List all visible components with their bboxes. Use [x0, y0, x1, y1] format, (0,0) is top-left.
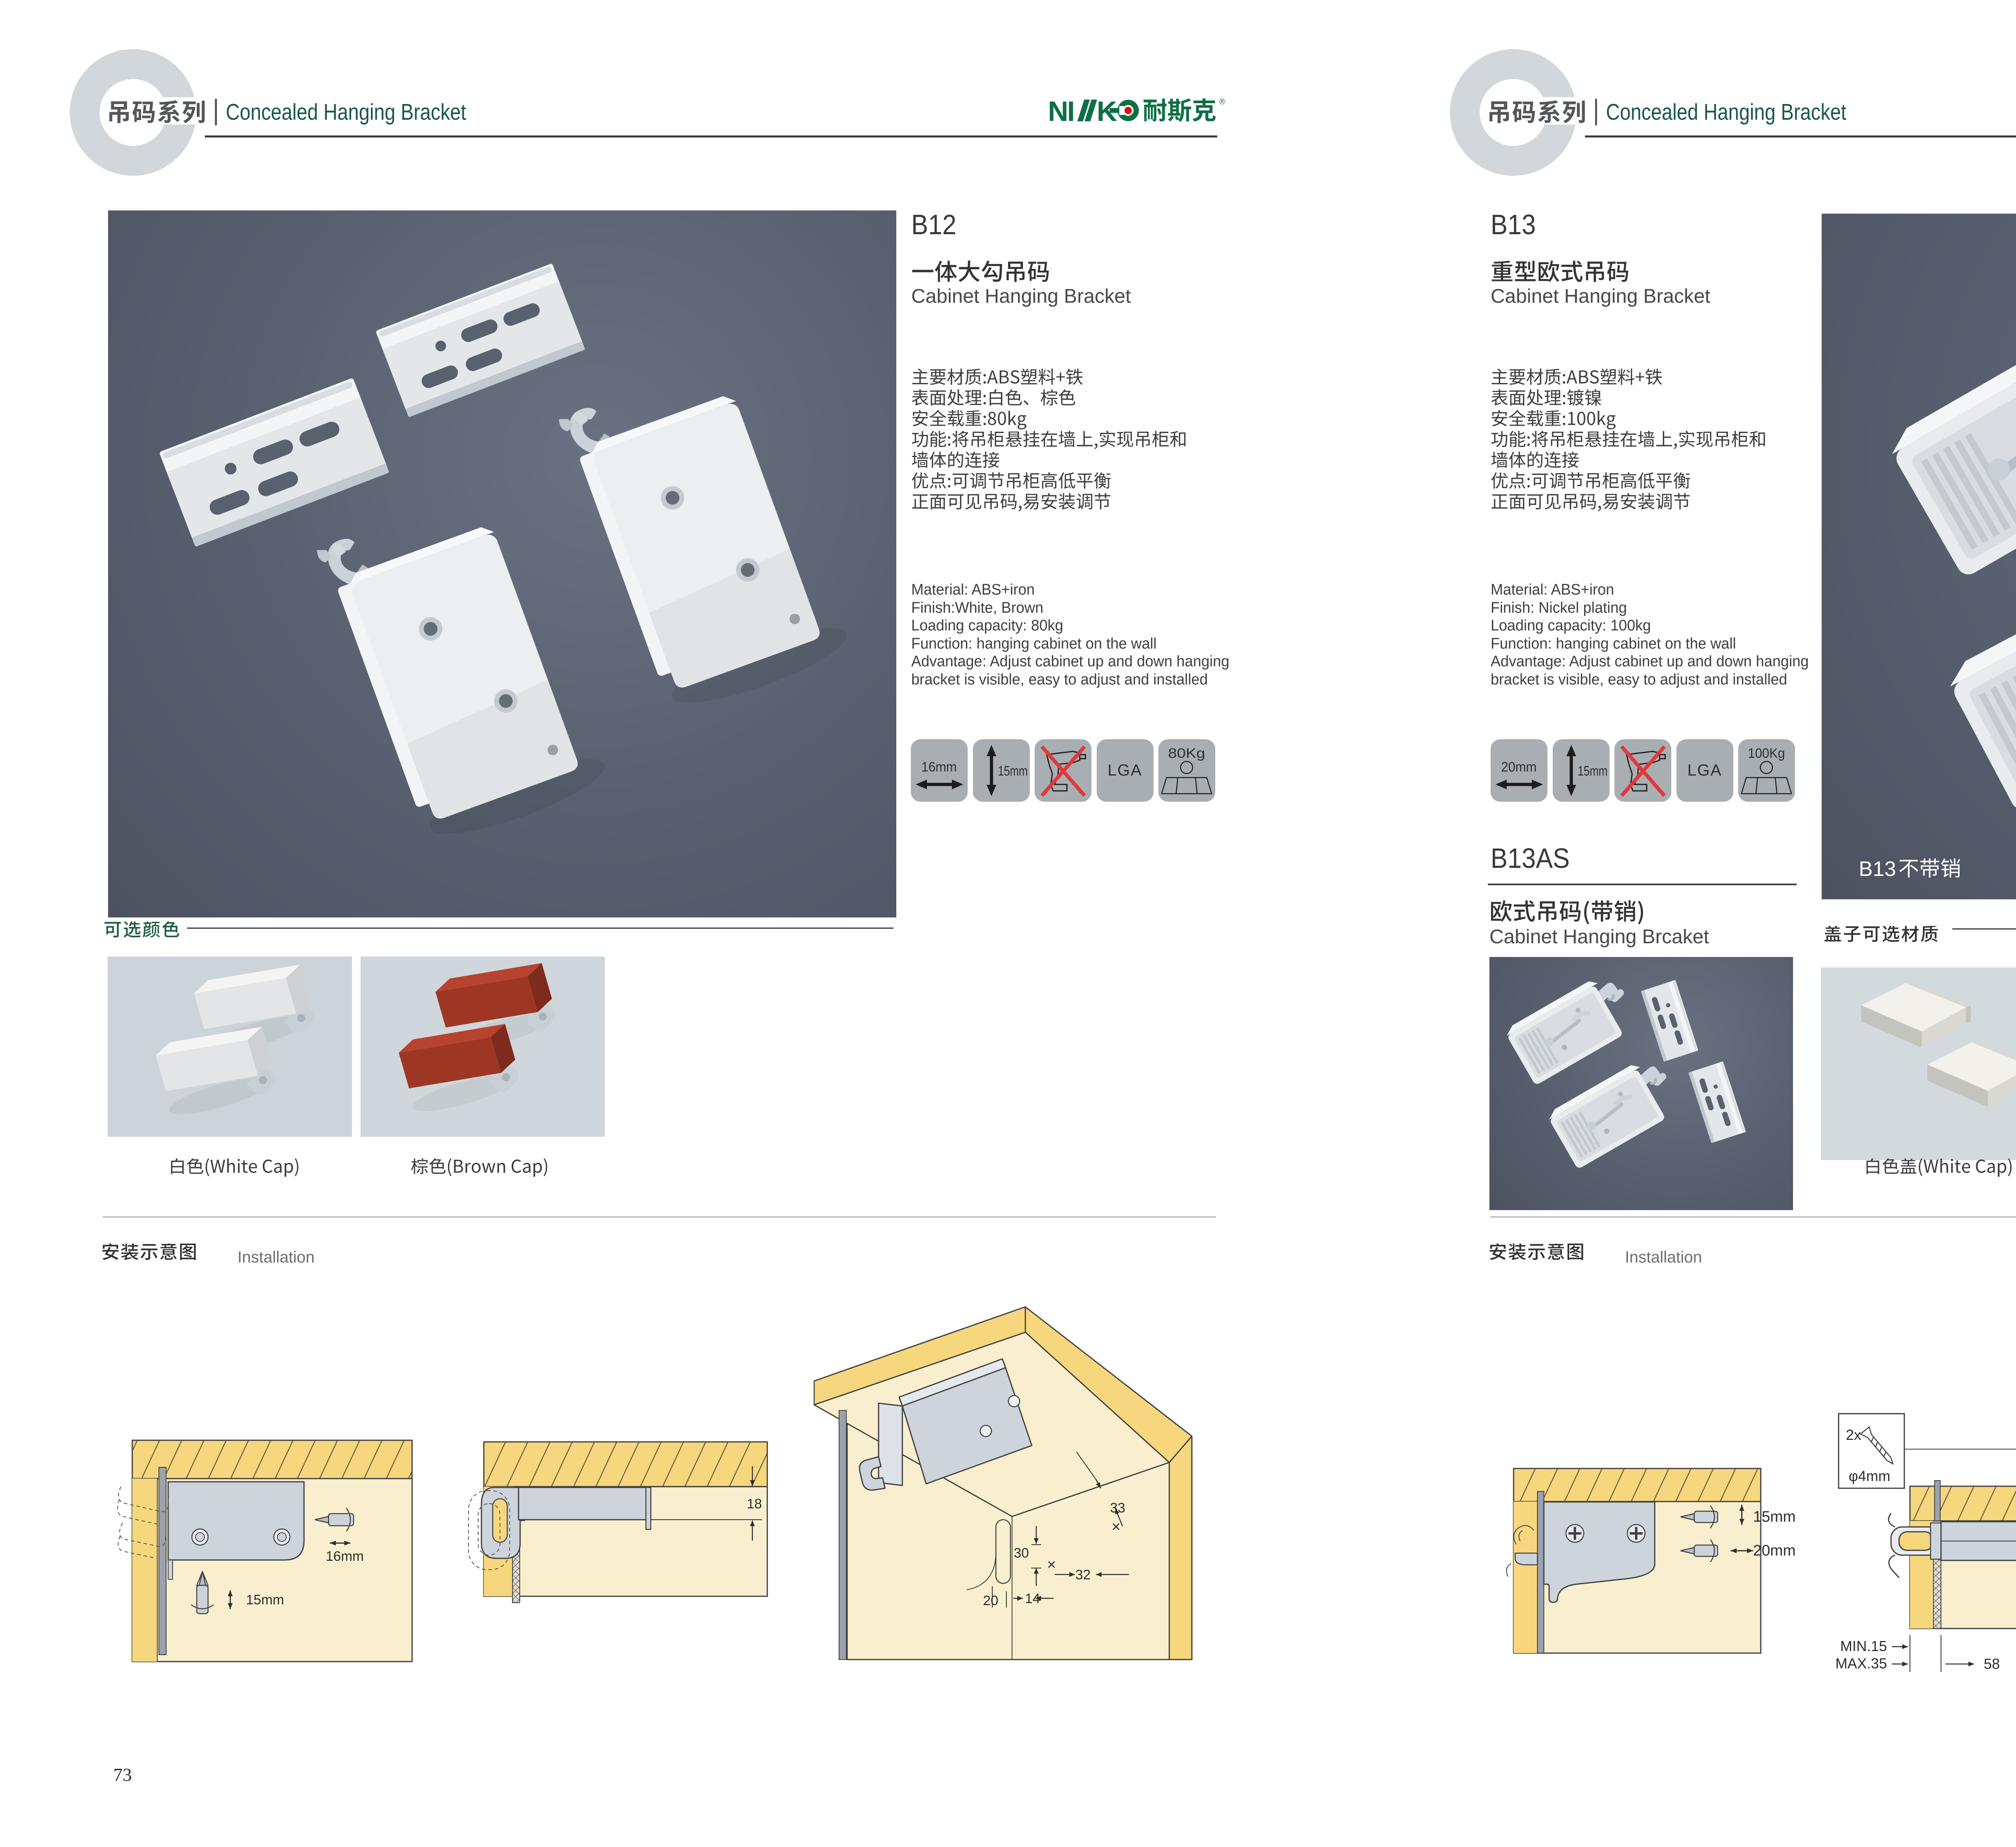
- svg-text:20: 20: [983, 1593, 998, 1608]
- svg-text:×: ×: [1112, 1518, 1120, 1535]
- svg-text:15mm: 15mm: [998, 763, 1028, 779]
- svg-text:B13: B13: [1859, 857, 1896, 881]
- svg-text:LGA: LGA: [1108, 761, 1142, 779]
- svg-text:Installation: Installation: [237, 1248, 314, 1266]
- svg-text:Installation: Installation: [1625, 1248, 1702, 1266]
- svg-text:φ4mm: φ4mm: [1849, 1468, 1890, 1484]
- svg-text:20mm: 20mm: [1753, 1542, 1796, 1559]
- svg-text:100Kg: 100Kg: [1748, 746, 1785, 761]
- svg-text:MAX.35: MAX.35: [1835, 1655, 1887, 1672]
- svg-text:NI: NI: [1049, 98, 1074, 125]
- svg-text:32: 32: [1075, 1567, 1091, 1583]
- svg-text:58: 58: [1984, 1656, 2000, 1672]
- svg-text:80Kg: 80Kg: [1168, 746, 1205, 761]
- svg-text:15mm: 15mm: [1578, 763, 1608, 779]
- svg-text:LGA: LGA: [1687, 761, 1722, 779]
- svg-text:®: ®: [1219, 98, 1225, 106]
- svg-text:33: 33: [1110, 1500, 1125, 1516]
- svg-text:15mm: 15mm: [246, 1592, 284, 1608]
- svg-text:2x: 2x: [1846, 1427, 1861, 1443]
- svg-text:14: 14: [1025, 1591, 1040, 1606]
- svg-text:×: ×: [1047, 1556, 1056, 1573]
- svg-text:MIN.15: MIN.15: [1840, 1638, 1887, 1654]
- svg-text:30: 30: [1014, 1545, 1029, 1561]
- svg-text:15mm: 15mm: [1753, 1508, 1796, 1525]
- svg-text:18: 18: [747, 1496, 762, 1512]
- svg-text:16mm: 16mm: [921, 759, 957, 775]
- svg-text:16mm: 16mm: [326, 1549, 364, 1564]
- svg-text:20mm: 20mm: [1501, 759, 1537, 775]
